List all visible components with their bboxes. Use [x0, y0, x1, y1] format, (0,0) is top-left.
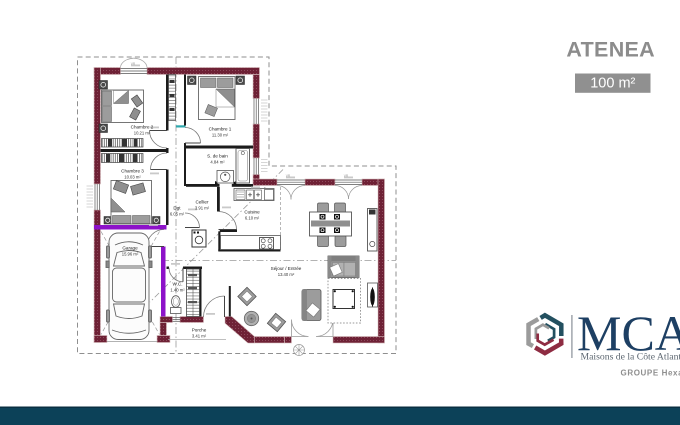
svg-text:VR: VR — [131, 62, 136, 66]
svg-text:GROUPE HexaŒm: GROUPE HexaŒm — [621, 369, 680, 378]
svg-text:Cuisine: Cuisine — [244, 210, 260, 215]
svg-text:ATENEA: ATENEA — [566, 38, 655, 62]
svg-text:Chambre 2: Chambre 2 — [131, 125, 154, 130]
svg-text:10.03 m²: 10.03 m² — [124, 174, 141, 179]
svg-text:6.05 m²: 6.05 m² — [170, 211, 185, 216]
svg-text:1.40 m²: 1.40 m² — [170, 287, 185, 292]
svg-text:Maisons de la Côte Atlantique: Maisons de la Côte Atlantique — [581, 352, 680, 363]
svg-text:W.C.: W.C. — [173, 282, 183, 287]
svg-text:Cellier: Cellier — [195, 200, 208, 205]
svg-text:S. de bain: S. de bain — [207, 154, 228, 159]
svg-text:VR: VR — [344, 174, 349, 178]
svg-text:4.84 m²: 4.84 m² — [210, 159, 225, 164]
svg-text:15.96 m²: 15.96 m² — [122, 251, 139, 256]
svg-text:Dgt: Dgt — [173, 206, 181, 211]
svg-text:3.41 m²: 3.41 m² — [192, 333, 207, 338]
svg-text:Séjour / Entrée: Séjour / Entrée — [271, 266, 302, 271]
svg-text:6.10 m²: 6.10 m² — [245, 215, 260, 220]
svg-text:13.40 m²: 13.40 m² — [278, 272, 295, 277]
svg-text:100 m²: 100 m² — [590, 76, 635, 92]
svg-text:3.91 m²: 3.91 m² — [195, 205, 210, 210]
svg-text:Garage: Garage — [122, 246, 138, 251]
svg-text:10.21 m²: 10.21 m² — [134, 130, 151, 135]
svg-text:Chambre 3: Chambre 3 — [121, 169, 144, 174]
svg-text:Chambre 1: Chambre 1 — [209, 127, 232, 132]
svg-text:11.30 m²: 11.30 m² — [212, 132, 229, 137]
svg-text:VR: VR — [286, 174, 291, 178]
svg-text:Porche: Porche — [192, 328, 207, 333]
